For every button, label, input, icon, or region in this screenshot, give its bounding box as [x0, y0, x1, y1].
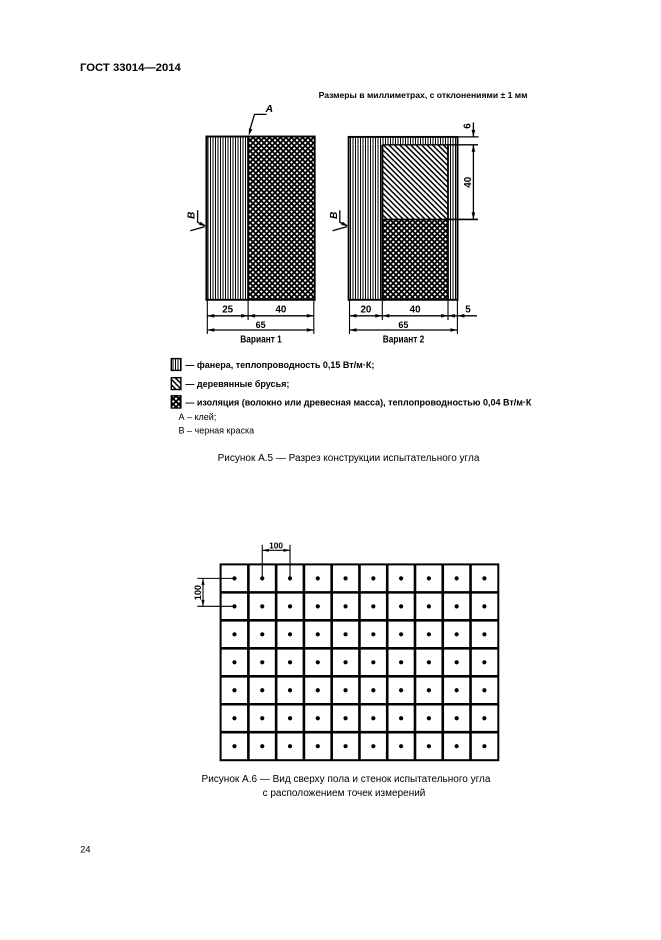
svg-text:65: 65: [256, 320, 266, 330]
svg-text:65: 65: [398, 320, 408, 330]
svg-text:ГОСТ 33014—2014: ГОСТ 33014—2014: [80, 62, 182, 74]
svg-text:— фанера, теплопроводность 0,1: — фанера, теплопроводность 0,15 Вт/м·К;: [185, 360, 374, 370]
svg-text:6: 6: [462, 123, 473, 129]
svg-text:с расположением точек измерени: с расположением точек измерений: [263, 788, 426, 799]
svg-text:В: В: [329, 212, 340, 219]
svg-text:5: 5: [465, 305, 471, 316]
svg-text:— деревянные брусья;: — деревянные брусья;: [185, 379, 289, 389]
svg-text:100: 100: [193, 585, 203, 600]
svg-text:40: 40: [410, 304, 421, 315]
svg-text:24: 24: [80, 845, 90, 855]
svg-text:Рисунок А.6 — Вид сверху пола: Рисунок А.6 — Вид сверху пола и стенок и…: [202, 774, 491, 785]
svg-text:25: 25: [222, 304, 233, 315]
svg-text:Рисунок А.5 — Разрез конструкц: Рисунок А.5 — Разрез конструкции испытат…: [218, 453, 480, 464]
svg-text:А: А: [265, 103, 274, 115]
svg-text:Размеры в миллиметрах, с откло: Размеры в миллиметрах, с отклонениями ± …: [319, 90, 528, 100]
svg-text:40: 40: [275, 304, 286, 315]
svg-text:А – клей;: А – клей;: [179, 412, 217, 422]
svg-text:Вариант 2: Вариант 2: [383, 335, 425, 346]
svg-text:100: 100: [269, 541, 283, 551]
svg-text:Вариант 1: Вариант 1: [240, 335, 282, 346]
svg-text:В: В: [187, 212, 198, 219]
svg-text:40: 40: [463, 176, 474, 187]
svg-text:В – черная краска: В – черная краска: [179, 425, 255, 435]
svg-text:20: 20: [360, 304, 371, 315]
svg-text:— изоляция (волокно или древес: — изоляция (волокно или древесная масса)…: [185, 397, 532, 407]
